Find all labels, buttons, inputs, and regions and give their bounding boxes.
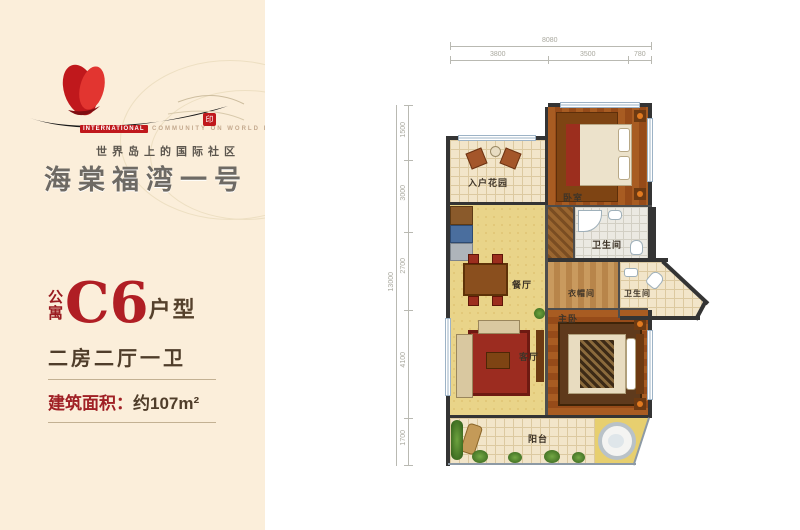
dim-tick xyxy=(651,42,652,50)
lamp-icon xyxy=(637,191,643,197)
dim-tick xyxy=(450,42,451,50)
area-value: 约107m² xyxy=(133,394,199,413)
label-bath2: 卫生间 xyxy=(624,288,651,299)
dim-tick xyxy=(548,56,549,64)
dim-left-seg3: 2700 xyxy=(400,258,407,274)
wall xyxy=(448,202,548,205)
dim-tick xyxy=(651,56,652,64)
dim-tick xyxy=(404,310,413,311)
divider-line xyxy=(48,422,216,423)
divider-line xyxy=(48,379,216,380)
dim-top-seg2: 3500 xyxy=(580,51,596,58)
loveseat xyxy=(478,320,520,334)
unit-layout-desc: 二房二厅一卫 xyxy=(48,342,218,371)
brochure: INTERNATIONAL COMMUNITY ON WORLD ISLAND … xyxy=(0,0,800,530)
sofa xyxy=(456,334,473,398)
kitchen-cabinet xyxy=(450,206,473,225)
label-balcony: 阳台 xyxy=(528,432,548,445)
chinese-tagline: 世界岛上的国际社区 xyxy=(96,143,240,159)
wall xyxy=(548,258,668,262)
unit-info: 公 寓 C6 户型 二房二厅一卫 建筑面积：约107m² xyxy=(48,280,218,423)
dining-chair xyxy=(468,254,479,264)
window xyxy=(647,330,653,400)
dim-line-top-segments xyxy=(450,60,652,61)
wall xyxy=(548,205,652,207)
dim-left-seg1: 1500 xyxy=(400,122,407,138)
dining-chair xyxy=(492,254,503,264)
pillow xyxy=(618,156,630,180)
wardrobe xyxy=(550,263,616,276)
dim-tick xyxy=(404,105,413,106)
project-title: 海棠福湾一号 xyxy=(44,158,248,197)
window xyxy=(445,318,451,396)
wall xyxy=(448,415,650,418)
dim-tick xyxy=(404,160,413,161)
dim-left-seg5: 1700 xyxy=(400,430,407,446)
dim-tick xyxy=(450,56,451,64)
label-dining: 餐厅 xyxy=(512,278,532,291)
label-entry-garden: 入户花园 xyxy=(468,176,508,189)
wall xyxy=(545,107,548,205)
label-bedroom: 卧室 xyxy=(563,191,583,204)
window xyxy=(458,135,536,141)
lamp-icon xyxy=(637,113,643,119)
dim-left-seg4: 4100 xyxy=(400,352,407,368)
dim-tick xyxy=(404,418,413,419)
wall xyxy=(620,316,700,320)
unit-prefix: 公 寓 xyxy=(48,290,63,328)
stem-line xyxy=(178,95,244,104)
dim-line-left-overall xyxy=(396,105,397,466)
headboard xyxy=(636,334,644,394)
bed-throw xyxy=(566,124,580,186)
dim-left-seg2: 3000 xyxy=(400,185,407,201)
bed-throw xyxy=(580,340,614,388)
toilet xyxy=(630,240,643,255)
wall xyxy=(573,207,575,260)
label-living: 客厅 xyxy=(519,350,539,363)
brand-panel: INTERNATIONAL COMMUNITY ON WORLD ISLAND … xyxy=(0,0,265,530)
pillow xyxy=(626,338,636,390)
dining-table xyxy=(463,263,508,296)
red-seal-icon: 印 xyxy=(203,113,216,126)
plant xyxy=(508,452,522,463)
unit-prefix-top: 公 xyxy=(48,290,63,306)
window xyxy=(560,102,640,108)
dim-top-seg3: 780 xyxy=(634,51,646,58)
dim-tick xyxy=(628,56,629,64)
english-tagline: INTERNATIONAL COMMUNITY ON WORLD ISLAND xyxy=(80,117,265,135)
plant xyxy=(544,450,560,463)
dim-tick xyxy=(404,232,413,233)
wall xyxy=(545,205,548,418)
wall xyxy=(652,207,656,262)
wall xyxy=(548,308,648,310)
plant xyxy=(572,452,585,463)
window xyxy=(647,118,653,182)
unit-code: C6 xyxy=(65,280,149,328)
sink xyxy=(608,210,622,220)
sink xyxy=(624,268,638,277)
label-bath1: 卫生间 xyxy=(592,238,622,251)
plant xyxy=(472,450,488,463)
lamp-icon xyxy=(637,401,643,407)
dining-chair xyxy=(468,296,479,306)
dim-line-top-overall xyxy=(450,46,652,47)
area-line: 建筑面积：约107m² xyxy=(48,389,218,414)
label-master: 主卧 xyxy=(558,312,578,325)
fridge xyxy=(450,225,473,243)
english-tagline-highlight: INTERNATIONAL xyxy=(80,125,148,133)
coffee-table xyxy=(486,352,510,369)
lamp-icon xyxy=(637,321,643,327)
dim-top-seg1: 3800 xyxy=(490,51,506,58)
unit-suffix: 户型 xyxy=(149,292,197,328)
bathtub-water xyxy=(608,434,624,448)
unit-prefix-bottom: 寓 xyxy=(48,306,63,322)
pillow xyxy=(618,128,630,152)
area-label: 建筑面积： xyxy=(48,394,133,413)
round-table xyxy=(490,146,501,157)
dim-left-overall: 13000 xyxy=(388,272,395,291)
plant xyxy=(534,308,545,319)
dim-top-overall: 8080 xyxy=(542,37,558,44)
dim-tick xyxy=(404,465,413,466)
unit-type-row: 公 寓 C6 户型 xyxy=(48,280,218,328)
dining-chair xyxy=(492,296,503,306)
english-tagline-rest: COMMUNITY ON WORLD ISLAND xyxy=(152,126,265,132)
bedroom-closet xyxy=(548,207,575,258)
plant xyxy=(451,420,463,460)
label-cloakroom: 衣帽间 xyxy=(568,288,595,299)
balcony-rail xyxy=(448,463,636,465)
